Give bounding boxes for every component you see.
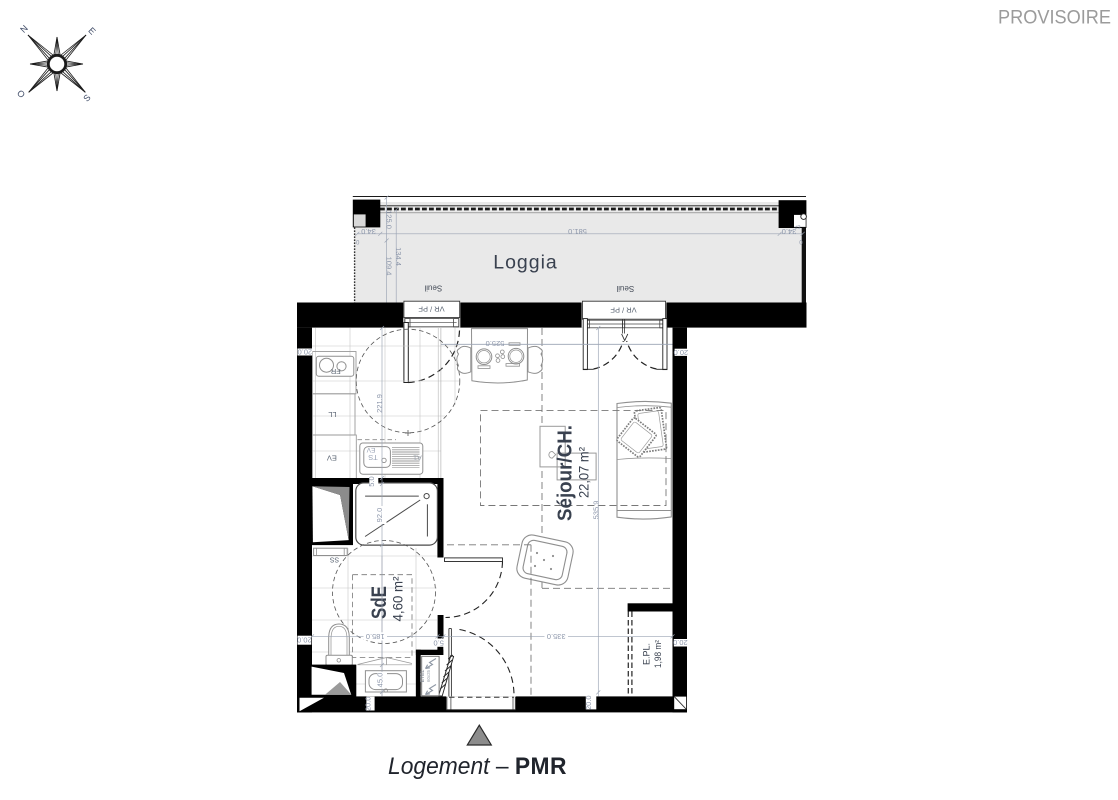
svg-text:34.0: 34.0 [782, 227, 797, 236]
svg-text:20.0: 20.0 [673, 348, 688, 357]
svg-text:FR: FR [330, 367, 341, 376]
svg-text:125.0: 125.0 [385, 210, 394, 229]
svg-text:45.0: 45.0 [375, 673, 384, 688]
svg-text:TS: TS [368, 453, 378, 462]
svg-text:Seuil: Seuil [616, 284, 634, 293]
svg-text:5.0: 5.0 [367, 476, 376, 486]
svg-text:22,07 m²: 22,07 m² [576, 447, 592, 498]
svg-text:EV: EV [366, 446, 375, 453]
svg-text:VR / PF: VR / PF [418, 305, 445, 314]
svg-text:SS: SS [330, 555, 340, 562]
svg-text:20.0: 20.0 [297, 636, 312, 645]
svg-text:20.0: 20.0 [297, 348, 312, 357]
svg-text:E.PL.: E.PL. [642, 643, 652, 665]
svg-text:60x25: 60x25 [426, 669, 431, 682]
svg-text:1,98 m²: 1,98 m² [653, 640, 663, 668]
svg-text:LL: LL [328, 410, 336, 419]
svg-text:Seuil: Seuil [424, 283, 442, 292]
svg-text:335.0: 335.0 [547, 632, 566, 641]
svg-text:109.4: 109.4 [385, 257, 394, 276]
svg-text:EV: EV [327, 453, 337, 462]
svg-text:PROVISOIRE: PROVISOIRE [998, 7, 1111, 29]
svg-text:20.0: 20.0 [363, 696, 372, 711]
svg-text:VR / PF: VR / PF [610, 305, 637, 314]
svg-text:525.0: 525.0 [486, 339, 505, 348]
svg-text:581.0: 581.0 [568, 227, 587, 236]
svg-text:Loggia: Loggia [493, 252, 558, 274]
svg-text:Séjour/CH.: Séjour/CH. [554, 425, 577, 521]
svg-text:Logement – PMR: Logement – PMR [388, 753, 567, 780]
svg-text:134.4: 134.4 [394, 247, 403, 266]
svg-text:5.0: 5.0 [433, 639, 443, 648]
svg-text:34.0: 34.0 [361, 227, 376, 236]
svg-text:221.9: 221.9 [375, 394, 384, 413]
svg-text:185.0: 185.0 [366, 632, 385, 641]
svg-text:20.0: 20.0 [673, 638, 688, 647]
svg-text:4,60 m²: 4,60 m² [390, 576, 406, 621]
svg-text:SdE: SdE [368, 586, 391, 619]
svg-text:20.0: 20.0 [584, 695, 593, 710]
svg-text:535.9: 535.9 [591, 501, 600, 520]
svg-text:A1: A1 [413, 454, 422, 461]
svg-text:92.0: 92.0 [375, 508, 384, 523]
